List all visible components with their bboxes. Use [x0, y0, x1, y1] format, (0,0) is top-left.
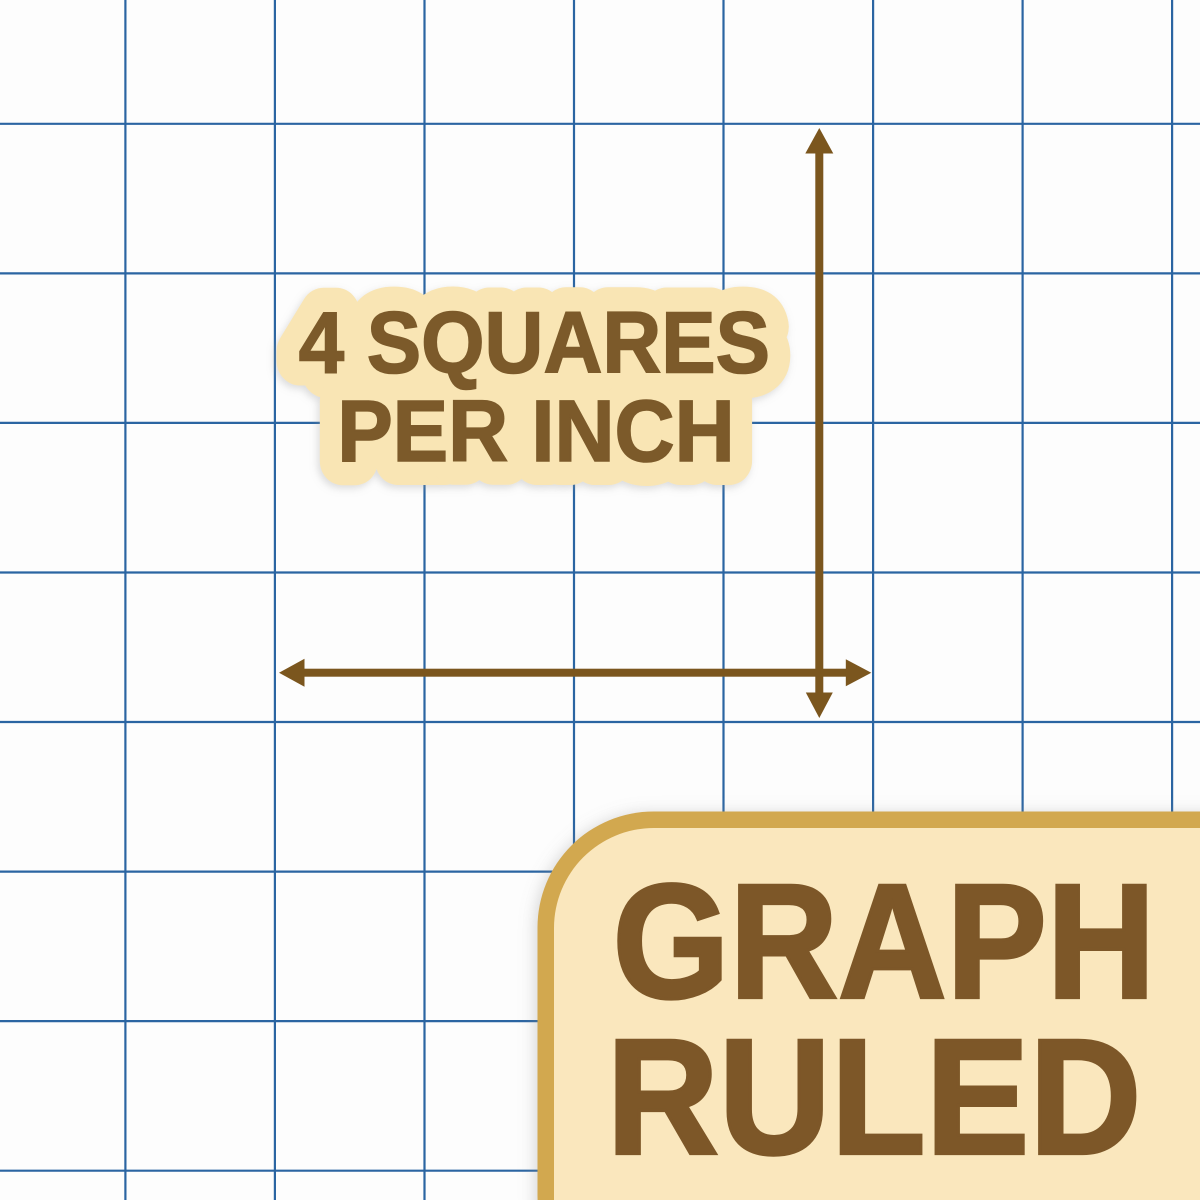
svg-text:PER INCH: PER INCH [337, 383, 735, 480]
svg-text:4 SQUARES: 4 SQUARES [299, 294, 770, 391]
svg-text:RULED: RULED [607, 1004, 1142, 1188]
